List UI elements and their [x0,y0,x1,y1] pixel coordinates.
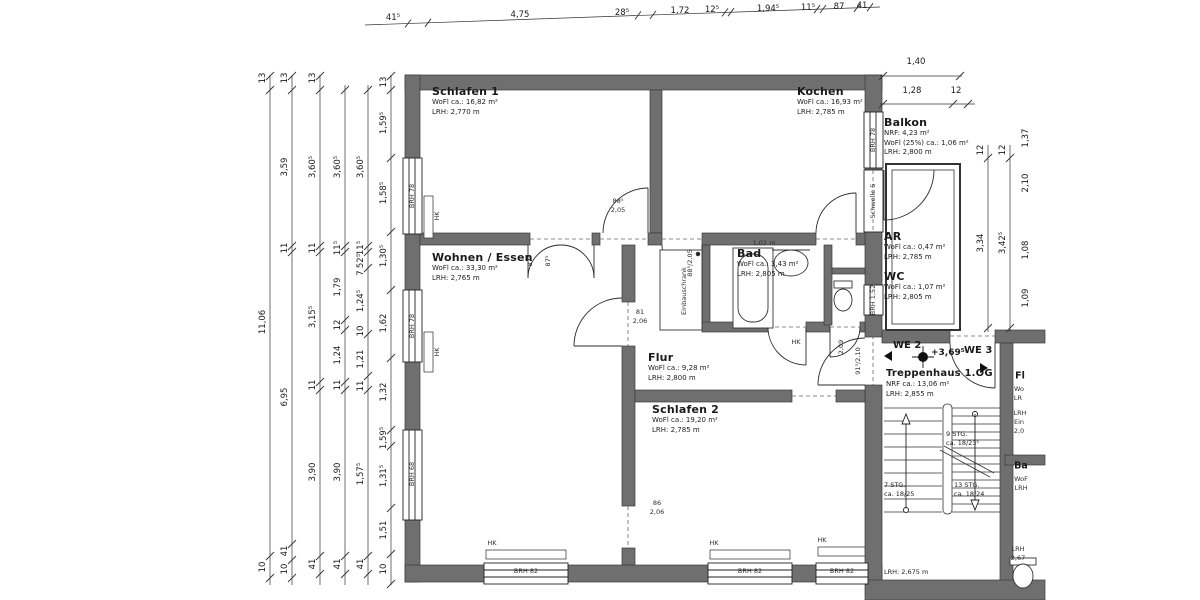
radiator-label: HK [433,211,441,220]
stair-flight-top: 9 STG. [946,430,967,439]
door-size: 2,09 [837,340,845,354]
dim-left: 12 [333,320,343,331]
dim-left: 11 [356,381,366,392]
dim-left: 13 [308,73,318,84]
dim-left: 41 [356,559,366,570]
dim-top: 1,72 [671,6,690,16]
clipped-room-label: Ba [1014,461,1028,472]
room-area: NRF ca.: 13,06 m² [886,380,993,390]
room-label-wohnen: Wohnen / Essen WoFl ca.: 33,30 m² LRH: 2… [432,252,533,283]
room-label-ar: AR WoFl ca.: 0,47 m² LRH: 2,785 m [884,231,945,262]
dim-left: 1,62 [379,314,389,333]
stairwell-lrh: LRH: 2,675 m [884,568,928,577]
window-label: BRH 78 [408,314,416,338]
room-height: LRH: 2,805 m [737,270,798,280]
room-name: Wohnen / Essen [432,252,533,264]
stair-flight-right: 13 STG. [954,481,980,490]
dim-left: 7 [356,270,366,275]
dim-left: 41 [308,559,318,570]
dim-top: 28⁵ [615,8,629,18]
room-label-wc: WC WoFl ca.: 1,07 m² LRH: 2,805 m [884,271,945,302]
room-area: WoFl ca.: 16,93 m² [797,98,863,108]
clipped-room-label: Fl [1015,371,1025,382]
room-area: WoFl (25%) ca.: 1,06 m² [884,139,969,149]
dim-left: 1,32 [379,383,389,402]
dim-left: 41 [333,559,343,570]
door-size: 81 [636,308,644,316]
door-size: 2,06 [650,508,664,516]
dim-left: 13 [379,77,389,88]
labels-layer: Schlafen 1 WoFl ca.: 16,82 m² LRH: 2,770… [0,0,1200,600]
room-label-kochen: Kochen WoFl ca.: 16,93 m² LRH: 2,785 m [797,86,863,117]
dim-left: 3,59 [280,158,290,177]
dim-left: 3,60⁵ [333,156,343,178]
dim-left: 1,24⁵ [356,290,366,312]
dim-left: 10 [280,564,290,575]
window-label: BRH 78 [869,128,877,152]
dim-left: 3,60⁵ [308,156,318,178]
dim-top: 1,94⁵ [757,4,779,14]
stair-flight-right-dim: ca. 18/24 [954,490,984,499]
dim-left: 1,51 [379,521,389,540]
dim-left: 1,59⁵ [379,427,389,449]
unit-label-we3: WE 3 [964,345,992,356]
room-name: Bad [737,248,798,260]
door-size: 87⁵ [544,256,552,267]
dim-left: 11 [333,380,343,391]
room-name: Flur [648,352,709,364]
dim-left: 41 [280,546,290,557]
dim-left: 10 [356,326,366,337]
dim-left: 13 [258,73,268,84]
room-height: LRH: 2,800 m [648,374,709,384]
dim-left: 3,60⁵ [356,156,366,178]
door-size: 86 [653,499,661,507]
room-height: LRH: 2,785 m [797,108,863,118]
detail-label: 1,02 m [753,239,776,247]
dim-left: 3,90 [333,463,343,482]
threshold-label: Schwelle 5 [869,184,877,219]
window-label: BRH 82 [514,567,538,575]
dim-right: 1,37 [1021,129,1031,148]
dim-left: 52⁵ [356,254,366,268]
dim-balkon: 12 [951,86,962,96]
room-height: LRH: 2,805 m [884,293,945,303]
clipped-text: LRH [1013,409,1026,417]
radiator-label: HK [433,347,441,356]
dim-left: 6,95 [280,388,290,407]
dim-left: 1,57⁵ [356,463,366,485]
room-label-flur: Flur WoFl ca.: 9,28 m² LRH: 2,800 m [648,352,709,383]
dim-right: 2,10 [1021,174,1031,193]
closet-label: Einbauschrank [680,267,688,315]
room-label-treppenhaus: Treppenhaus 1.OG NRF ca.: 13,06 m² LRH: … [886,368,993,399]
dim-top: 11⁵ [801,3,815,13]
room-area: WoFl ca.: 9,28 m² [648,364,709,374]
dim-top: 41 [857,1,868,11]
dim-left: 13 [280,73,290,84]
stair-flight-left: 7 STG. [884,481,905,490]
dim-right: 3,42⁵ [998,232,1008,254]
room-name: WC [884,271,945,283]
dim-right: 12 [998,145,1008,156]
dim-right: 1,09 [1021,289,1031,308]
dim-left: 11⁵ [333,241,343,255]
radiator-label: HK [487,539,496,547]
clipped-text: LRH [1011,545,1024,553]
window-label: BRH 1,52 [869,285,877,315]
dim-left: 10 [258,562,268,573]
dim-top: 41⁵ [386,13,400,23]
dim-left: 1,79 [333,278,343,297]
dim-left: 1,58⁵ [379,182,389,204]
dim-left: 11 [308,380,318,391]
stair-flight-left-dim: ca. 18/25 [884,490,914,499]
room-name: AR [884,231,945,243]
room-label-bad: Bad WoFl ca.: 3,43 m² LRH: 2,805 m [737,248,798,279]
clipped-text: LR [1014,394,1022,402]
dim-right: 3,34 [976,234,986,253]
room-area: WoFl ca.: 16,82 m² [432,98,499,108]
dim-left: 1,31⁵ [379,465,389,487]
room-height: LRH: 2,800 m [884,148,969,158]
room-label-schlafen1: Schlafen 1 WoFl ca.: 16,82 m² LRH: 2,770… [432,86,499,117]
room-label-schlafen2: Schlafen 2 WoFl ca.: 19,20 m² LRH: 2,785… [652,404,719,435]
dim-top: 12⁵ [705,5,719,15]
radiator-label: HK [817,536,826,544]
room-area: WoFl ca.: 3,43 m² [737,260,798,270]
dim-left: 1,59⁵ [379,112,389,134]
clipped-text: Wo [1014,385,1024,393]
room-area: WoFl ca.: 33,30 m² [432,264,533,274]
level-value: +3,69⁵ [931,348,965,358]
room-label-balkon: Balkon NRF: 4,23 m² WoFl (25%) ca.: 1,06… [884,117,969,158]
dim-left: 3,15⁵ [308,306,318,328]
radiator-label: HK [709,539,718,547]
room-area: WoFl ca.: 0,47 m² [884,243,945,253]
window-label: BRH 78 [408,184,416,208]
room-height: LRH: 2,785 m [652,426,719,436]
dim-left: 10 [379,564,389,575]
dim-balkon: 1,40 [907,57,926,67]
room-area: WoFl ca.: 1,07 m² [884,283,945,293]
floorplan-canvas: Schlafen 1 WoFl ca.: 16,82 m² LRH: 2,770… [0,0,1200,600]
dim-left: 11 [280,243,290,254]
dim-left: 1,30⁵ [379,245,389,267]
room-name: Kochen [797,86,863,98]
door-size: 91⁵/2,10 [854,347,862,375]
dim-right: 12 [976,145,986,156]
window-label: BRH 68 [408,462,416,486]
dim-top: 4,75 [511,10,530,20]
room-height: LRH: 2,855 m [886,390,993,400]
dim-right: 1,08 [1021,241,1031,260]
stair-flight-top-dim: ca. 18/23⁵ [946,439,979,448]
room-height: LRH: 2,785 m [884,253,945,263]
clipped-text: LRH [1014,484,1027,492]
dim-left: 1,21 [356,350,366,369]
unit-label-we2: WE 2 [893,340,921,351]
door-size: 2,05 [611,206,625,214]
clipped-text: 2,67 [1011,554,1025,562]
window-label: BRH 82 [738,567,762,575]
dim-left: 3,90 [308,463,318,482]
dim-balkon: 1,28 [903,86,922,96]
room-nrf: NRF: 4,23 m² [884,129,969,139]
dim-left: 11,06 [258,310,268,334]
room-height: LRH: 2,770 m [432,108,499,118]
door-size: 88⁵ [613,197,624,205]
window-label: BRH 82 [830,567,854,575]
dim-top: 87 [834,2,845,12]
clipped-text: WoF [1014,475,1028,483]
door-size: 87⁵ [526,256,534,267]
clipped-text: 2,0 [1014,427,1024,435]
dim-left: 1,24 [333,346,343,365]
room-name: Treppenhaus 1.OG [886,368,993,380]
room-name: Balkon [884,117,969,129]
radiator-label: HK [791,338,800,346]
clipped-text: Ein [1014,418,1024,426]
room-area: WoFl ca.: 19,20 m² [652,416,719,426]
door-size: 2,06 [633,317,647,325]
dim-left: 11 [308,243,318,254]
room-height: LRH: 2,765 m [432,274,533,284]
room-name: Schlafen 1 [432,86,499,98]
room-name: Schlafen 2 [652,404,719,416]
